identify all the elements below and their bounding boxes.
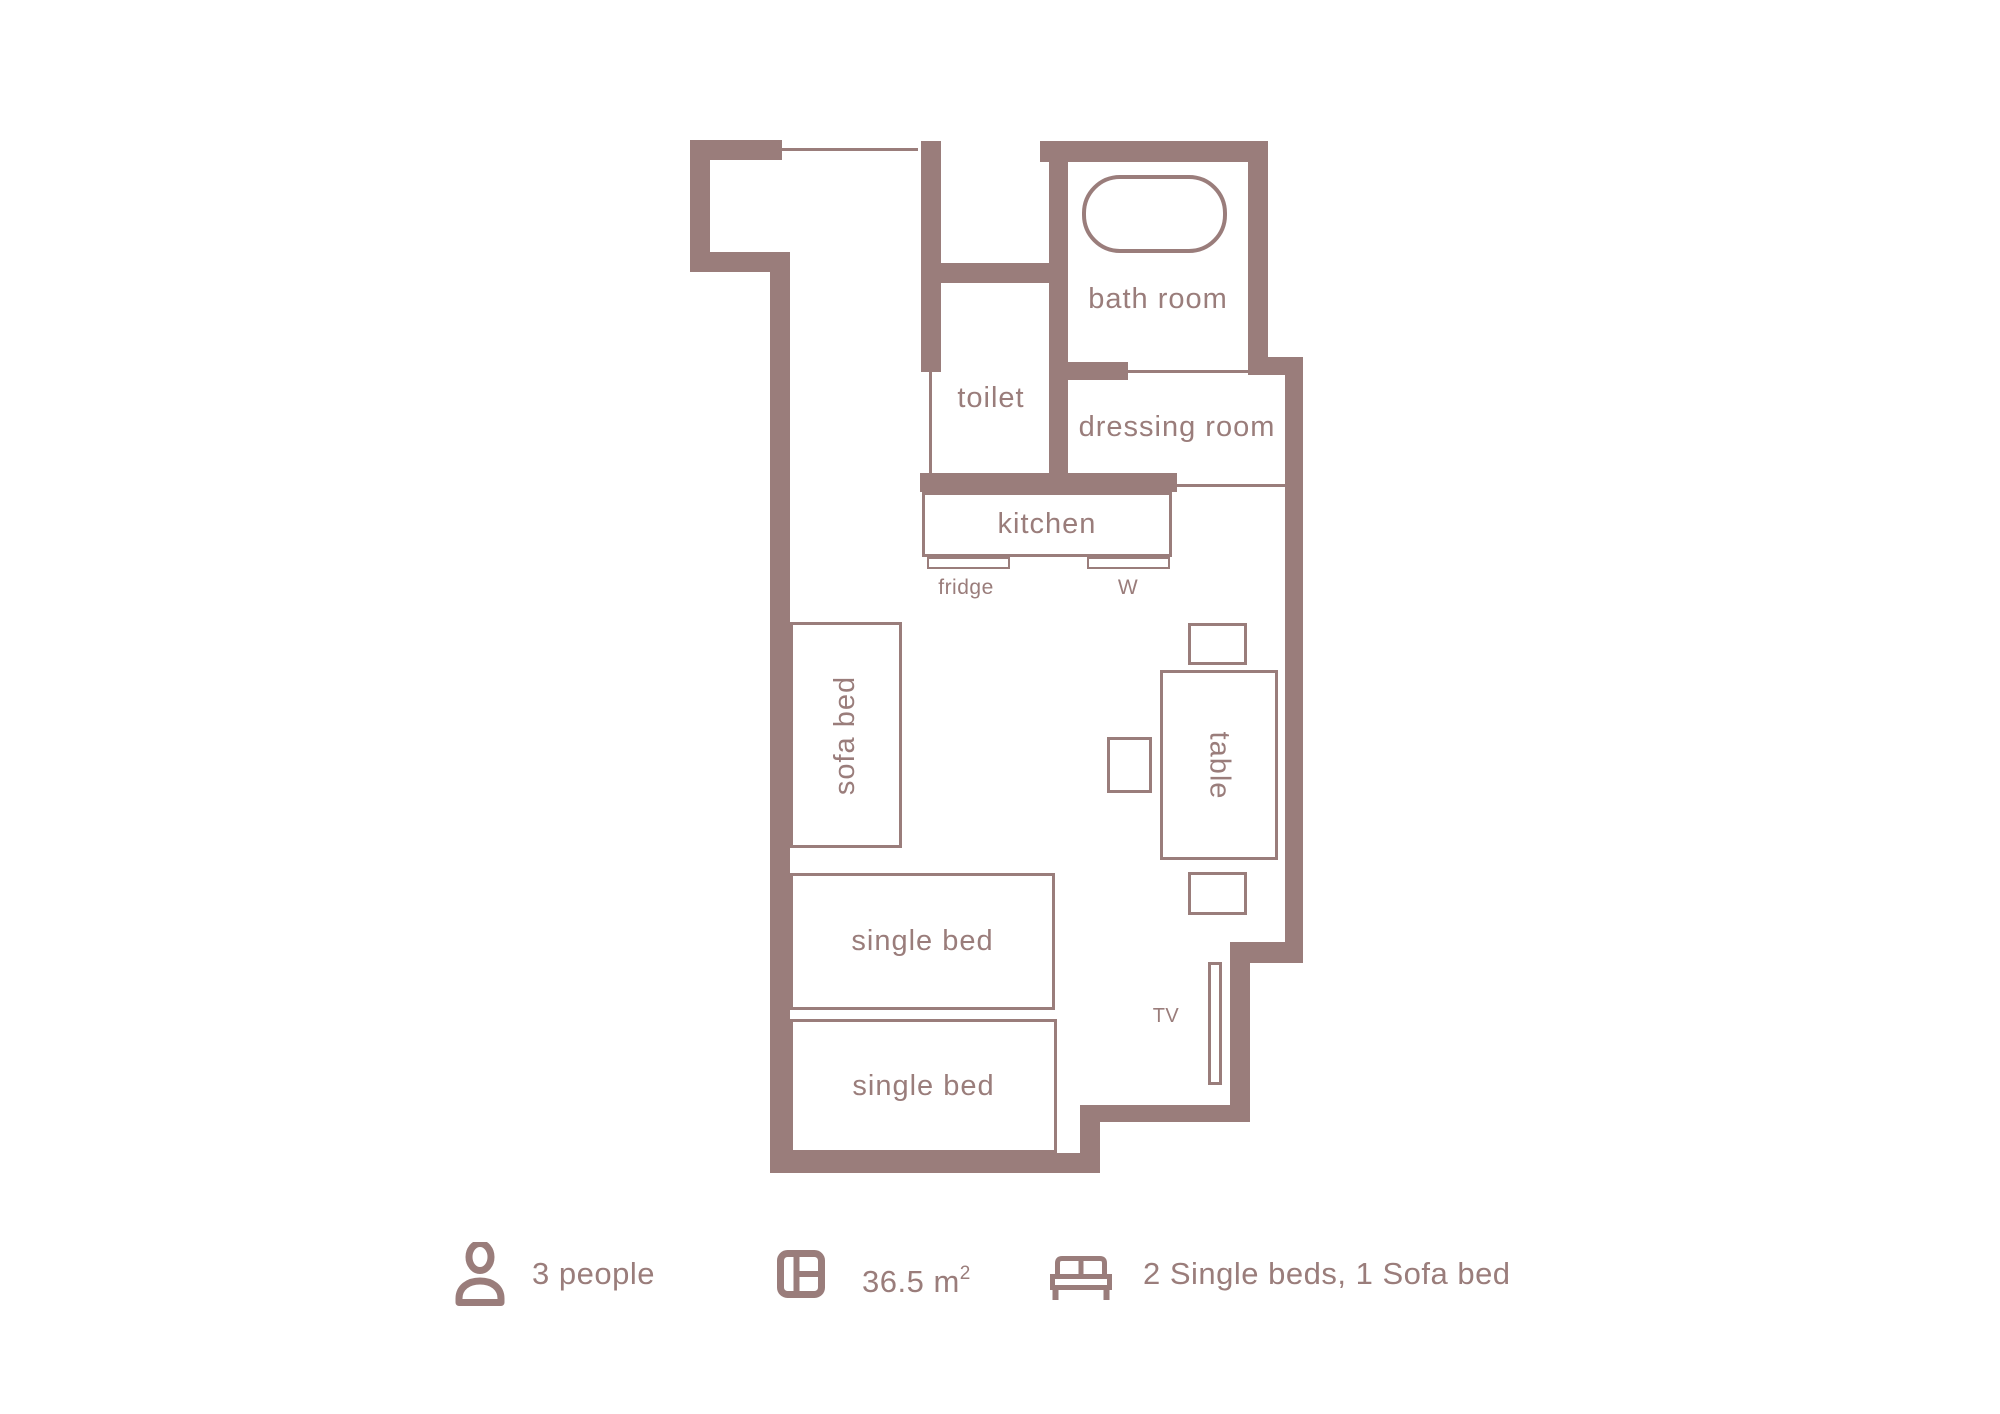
bathroom-label: bath room xyxy=(1058,283,1258,316)
bed-icon xyxy=(1050,1253,1112,1303)
table-label: table xyxy=(1202,731,1235,799)
dressing-room-bottom-line xyxy=(1177,484,1285,487)
wall-bathroom-dressing-divider xyxy=(1049,141,1068,492)
wall-kitchen-top xyxy=(920,473,1177,492)
single-bed-top-label: single bed xyxy=(851,925,993,958)
wall-toilet-top xyxy=(921,263,1068,283)
area-label: 36.5 m2 xyxy=(862,1250,971,1306)
capacity-label: 3 people xyxy=(532,1250,655,1298)
dressing-room-label: dressing room xyxy=(1067,411,1287,444)
toilet-label: toilet xyxy=(926,382,1056,415)
dining-table: table xyxy=(1160,670,1278,860)
wall-step-lower-horizontal xyxy=(1080,1105,1250,1122)
wall-bathroom-bottom xyxy=(1068,362,1128,380)
chair-bottom xyxy=(1188,872,1247,915)
fridge-unit xyxy=(927,557,1010,569)
single-bed-bottom: single bed xyxy=(790,1019,1057,1153)
chair-left xyxy=(1107,737,1152,793)
single-bed-bottom-label: single bed xyxy=(852,1070,994,1103)
wall-right xyxy=(1285,357,1303,963)
sofa-bed: sofa bed xyxy=(790,622,902,848)
chair-top xyxy=(1188,623,1247,665)
bathtub xyxy=(1082,175,1227,253)
washing-machine-unit xyxy=(1087,557,1170,569)
kitchen-counter: kitchen xyxy=(922,492,1172,557)
floor-area-icon xyxy=(777,1250,825,1298)
area-superscript: 2 xyxy=(960,1263,971,1284)
tv-unit xyxy=(1208,962,1222,1085)
kitchen-label: kitchen xyxy=(998,508,1097,541)
bathroom-door-line xyxy=(1128,370,1248,373)
wall-bathroom-top xyxy=(1040,141,1268,162)
person-icon xyxy=(455,1242,505,1306)
wall-step-upper-vertical xyxy=(1230,942,1250,1122)
washing-machine-label: W xyxy=(1078,576,1178,600)
sleeping-label: 2 Single beds, 1 Sofa bed xyxy=(1143,1250,1511,1298)
wall-toilet-left xyxy=(921,141,941,372)
wall-bathroom-right xyxy=(1248,141,1268,375)
sofa-bed-label: sofa bed xyxy=(830,675,863,794)
wall-left xyxy=(770,252,790,1173)
area-value: 36.5 m xyxy=(862,1264,960,1299)
fridge-label: fridge xyxy=(916,576,1016,600)
window-line-top xyxy=(782,148,918,151)
tv-label: TV xyxy=(1126,1005,1206,1028)
single-bed-top: single bed xyxy=(790,873,1055,1010)
floor-plan-page: kitchen sofa bed table single bed single… xyxy=(0,0,2000,1414)
wall-bottom xyxy=(770,1153,1090,1173)
